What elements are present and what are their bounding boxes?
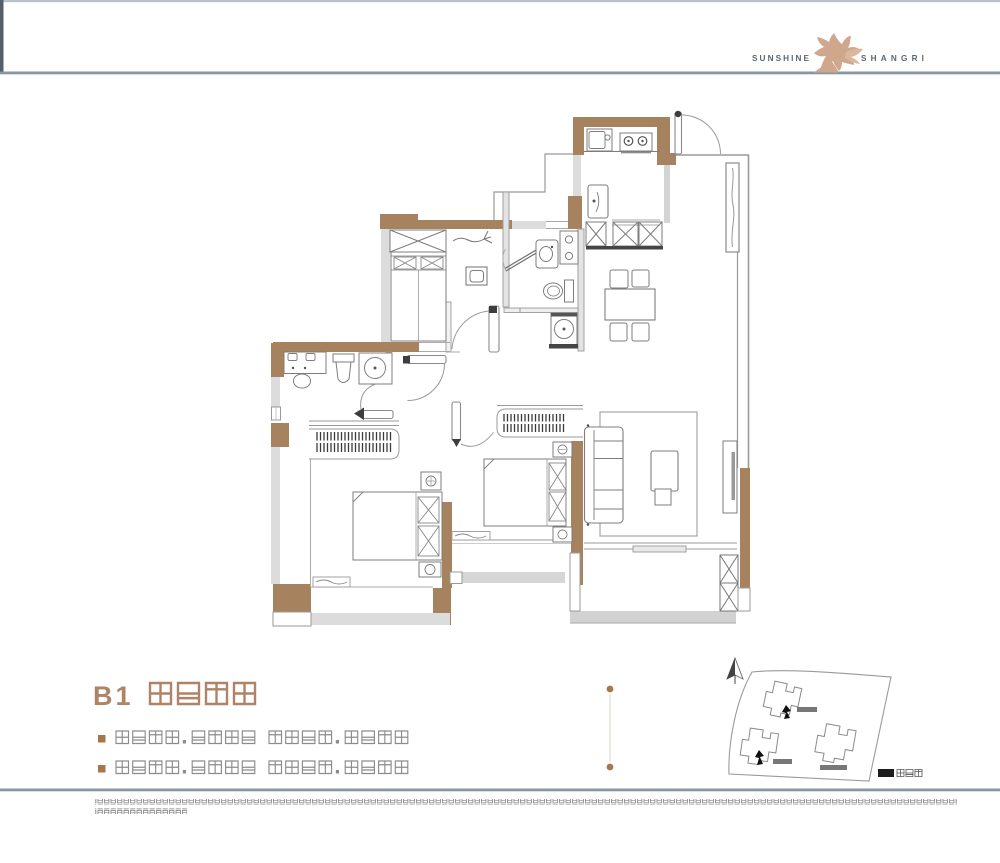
svg-text:SHANGRI: SHANGRI <box>861 54 928 63</box>
svg-text:SUNSHINE: SUNSHINE <box>752 54 811 63</box>
svg-text:B1: B1 <box>93 681 134 711</box>
